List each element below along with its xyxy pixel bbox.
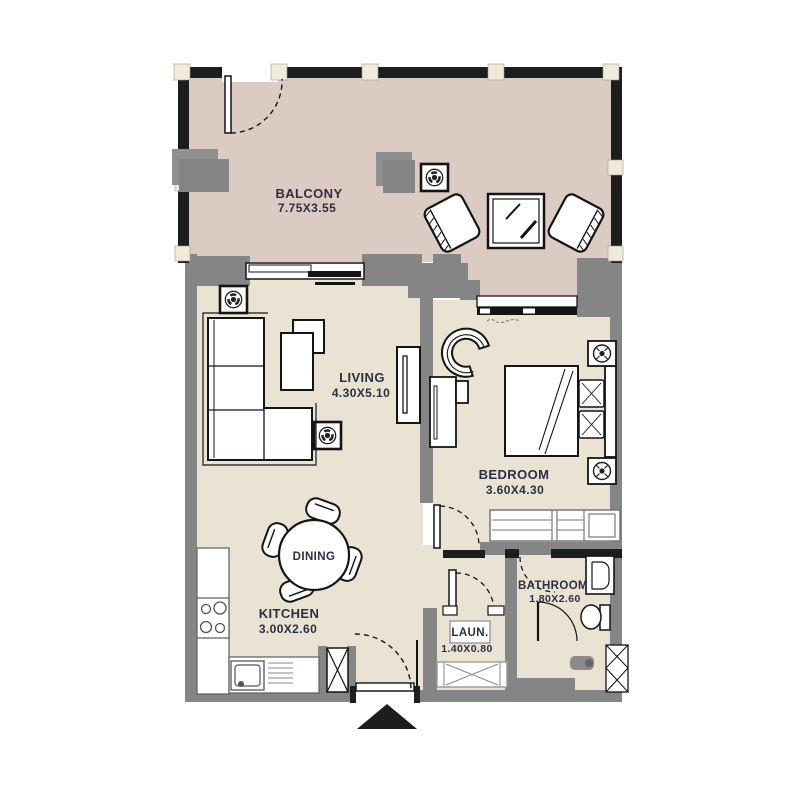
kitchen-sink [231,661,264,690]
room-name: DINING [293,551,336,563]
room-name: LIVING [339,370,385,385]
room-name: KITCHEN [259,606,320,621]
wardrobe [490,510,620,541]
floor-fixture [570,656,594,670]
ceiling-fan-icon [314,422,341,449]
floor-plan: BALCONY 7.75X3.55 LIVING 4.30X5.10 BEDRO… [0,0,800,800]
room-name: LAUN. [451,627,488,639]
pillow [579,380,604,407]
room-dims: 1.40X0.80 [441,643,492,655]
floor-plan-drawing: BALCONY 7.75X3.55 LIVING 4.30X5.10 BEDRO… [0,0,800,800]
room-name: BATHROOM [518,580,588,592]
shaft [606,645,628,692]
ceiling-fan-icon [421,164,448,191]
table-lamp-icon [594,463,611,480]
room-label-balcony: BALCONY 7.75X3.55 [275,186,342,215]
room-dims: 7.75X3.55 [278,201,336,215]
linen-closet [437,662,507,687]
nightstand [588,458,616,484]
room-dims: 4.30X5.10 [332,386,390,400]
room-name: BEDROOM [479,467,550,482]
room-dims: 3.60X4.30 [486,483,544,497]
room-dims: 3.00X2.60 [259,622,317,636]
table-lamp-icon [594,345,611,362]
nightstand [588,341,616,366]
room-dims: 1.80X2.60 [529,593,580,605]
pillow [579,411,604,438]
toilet [581,605,610,630]
balcony-table [488,194,544,248]
room-label-dining: DINING [293,551,336,563]
pantry-cabinet [327,648,348,692]
room-label-bathroom: BATHROOM 1.80X2.60 [518,580,588,605]
bathroom-sink [586,556,614,594]
ceiling-fan-icon [220,286,247,313]
stove [197,598,229,638]
entrance-arrow-icon [357,704,417,729]
room-name: BALCONY [275,186,342,201]
tv-unit [397,347,420,423]
